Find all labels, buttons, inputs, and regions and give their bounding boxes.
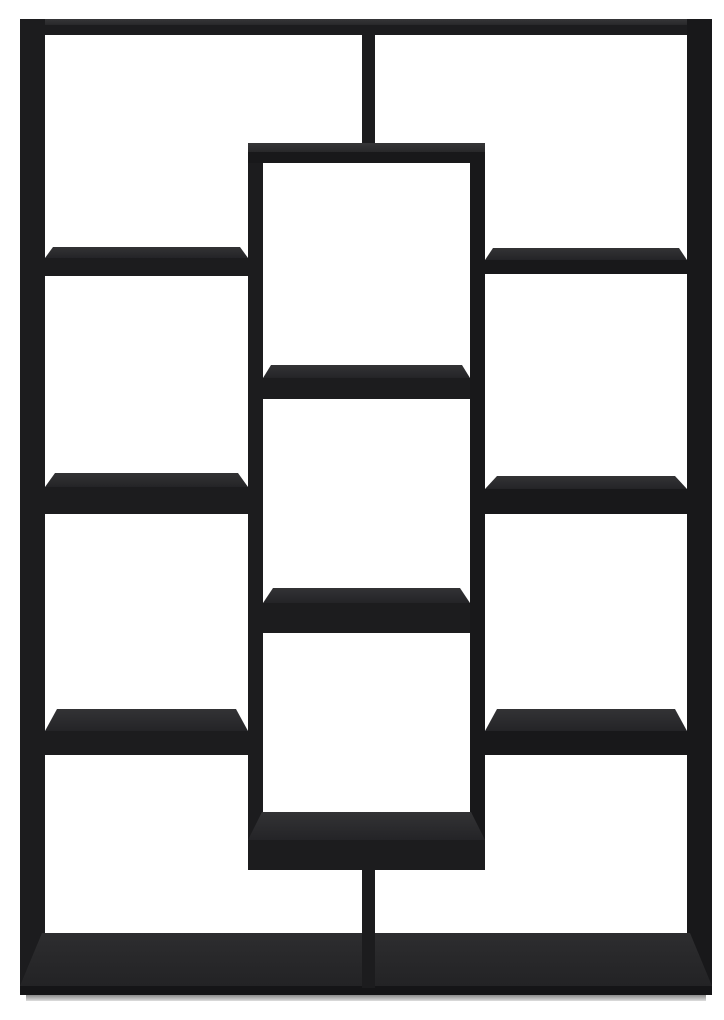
middle-box-bottom-top bbox=[248, 812, 485, 840]
floor-shadow bbox=[26, 995, 706, 1001]
left-shelf-1-face bbox=[45, 258, 248, 276]
left-upright bbox=[20, 19, 45, 994]
left-shelf-2-top bbox=[45, 473, 248, 487]
middle-box-top-surface bbox=[248, 143, 485, 152]
middle-left-wall bbox=[248, 145, 263, 870]
right-shelf-1-top bbox=[485, 248, 687, 260]
middle-shelf-lower-face bbox=[263, 603, 470, 633]
middle-shelf-upper-face bbox=[263, 378, 470, 399]
right-shelf-2-top bbox=[485, 476, 687, 489]
right-shelf-3-top bbox=[485, 709, 687, 731]
left-shelf-1-top bbox=[45, 247, 248, 258]
middle-right-wall bbox=[470, 145, 485, 870]
bottom-center-divider bbox=[362, 866, 375, 988]
left-shelf-2-face bbox=[45, 487, 248, 514]
middle-box-top-face bbox=[248, 152, 485, 163]
right-shelf-1-face bbox=[485, 260, 687, 274]
top-center-divider bbox=[362, 30, 375, 151]
right-shelf-2-face bbox=[485, 489, 687, 514]
right-upright bbox=[687, 19, 712, 994]
right-shelf-3-face bbox=[485, 731, 687, 755]
left-shelf-3-top bbox=[45, 709, 248, 731]
middle-shelf-upper-top bbox=[263, 365, 470, 378]
left-shelf-3-face bbox=[45, 731, 248, 755]
middle-shelf-lower-top bbox=[263, 588, 470, 603]
bookshelf-product-image bbox=[0, 0, 724, 1020]
